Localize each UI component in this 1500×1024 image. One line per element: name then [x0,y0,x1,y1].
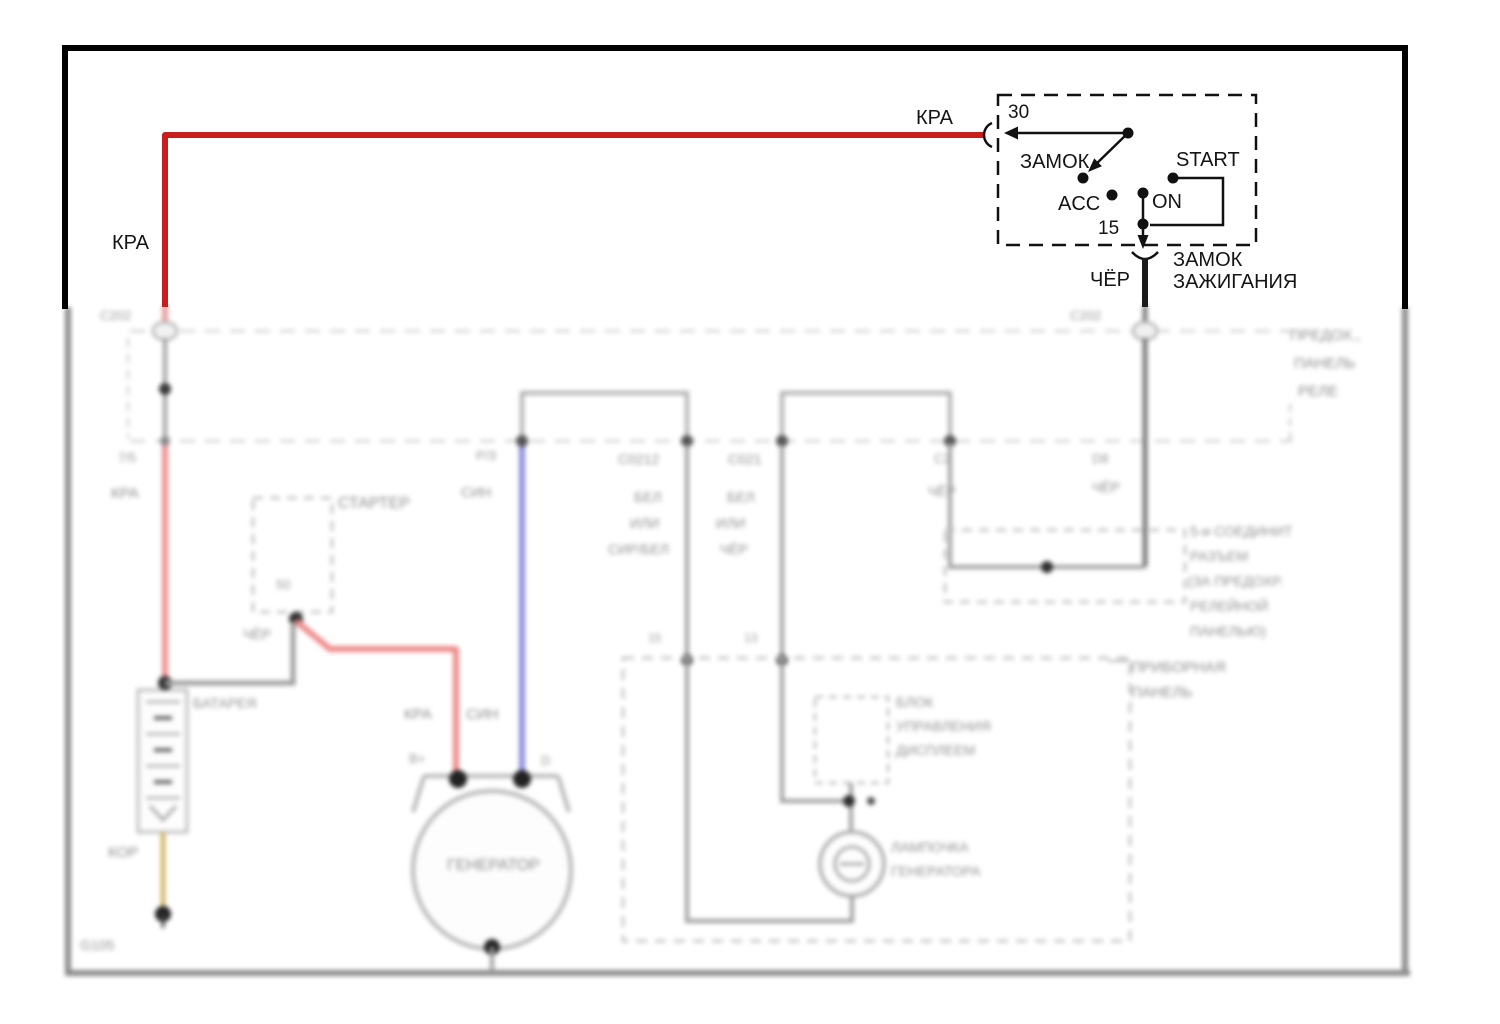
terminal-15-label: 15 [1098,219,1119,239]
lock-position-label: ЗАМОК [1020,152,1089,173]
acc-position-label: ACC [1058,194,1100,215]
terminal-30-arrowhead [1004,127,1018,140]
ignition-name-line2: ЗАЖИГАНИЯ [1173,272,1297,293]
terminal-30-label: 30 [1008,103,1029,123]
red-wire-connector-arc [984,123,992,147]
kra-label-right: КРА [916,108,953,129]
highlighted-circuit-layer: КРА КРА 30 ЗАМОК START ACC ON 15 ЧЁР ЗАМ… [0,0,1500,1024]
highlighted-circuit-graphics [0,0,1500,1024]
ignition-name-line1: ЗАМОК [1173,250,1242,271]
cher-wire-label: ЧЁР [1090,270,1130,291]
on-position-label: ON [1152,192,1182,213]
terminal-15-connector-arc [1132,252,1158,259]
wiring-diagram: С202 7/5 КРА СТАРТЕР 50 ЧЁР БАТАРЕЯ КОР … [0,0,1500,1024]
red-power-wire [165,135,985,307]
start-position-label: START [1176,150,1240,171]
terminal-15-arrowhead [1138,235,1149,249]
kra-label-left: КРА [112,233,149,254]
